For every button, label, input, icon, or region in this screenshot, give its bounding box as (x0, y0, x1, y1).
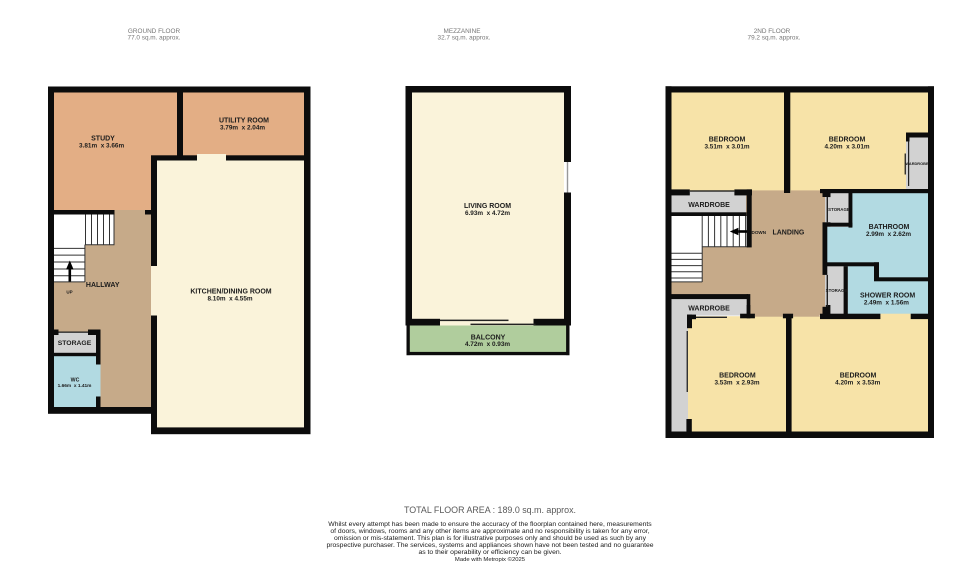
svg-text:3.79m x 2.04m: 3.79m x 2.04m (220, 125, 265, 132)
svg-text:32.7 sq.m. approx.: 32.7 sq.m. approx. (438, 35, 491, 42)
svg-text:SHOWER ROOM: SHOWER ROOM (860, 293, 915, 300)
svg-text:2.49m x 1.56m: 2.49m x 1.56m (864, 300, 909, 307)
svg-text:STORAGE: STORAGE (58, 340, 92, 347)
svg-text:KITCHEN/DINING ROOM: KITCHEN/DINING ROOM (190, 289, 271, 296)
svg-text:STORAGE: STORAGE (828, 207, 850, 212)
svg-text:3.51m x 3.01m: 3.51m x 3.01m (704, 144, 749, 151)
svg-text:BEDROOM: BEDROOM (719, 373, 756, 380)
svg-text:1.66m x 1.41m: 1.66m x 1.41m (58, 383, 92, 389)
svg-text:WC: WC (71, 378, 80, 384)
svg-text:WARDROBE: WARDROBE (688, 305, 730, 312)
svg-text:6.93m x 4.72m: 6.93m x 4.72m (465, 210, 510, 217)
svg-text:4.72m x 0.93m: 4.72m x 0.93m (465, 341, 510, 348)
svg-text:4.20m x 3.53m: 4.20m x 3.53m (835, 380, 880, 387)
svg-text:of doors, windows, rooms and a: of doors, windows, rooms and any other i… (330, 528, 649, 535)
svg-text:8.10m x 4.55m: 8.10m x 4.55m (207, 296, 252, 303)
svg-text:STORAGE: STORAGE (826, 288, 848, 293)
svg-text:3.53m x 2.93m: 3.53m x 2.93m (714, 380, 759, 387)
svg-text:Made with Metropix ©2025: Made with Metropix ©2025 (455, 556, 526, 563)
svg-text:STUDY: STUDY (91, 136, 115, 143)
svg-text:BEDROOM: BEDROOM (840, 373, 877, 380)
svg-text:as to their operability or eff: as to their operability or efficiency ca… (418, 549, 561, 556)
svg-text:BATHROOM: BATHROOM (869, 224, 910, 231)
svg-text:BEDROOM: BEDROOM (829, 137, 866, 144)
svg-text:TOTAL FLOOR AREA : 189.0 sq.m.: TOTAL FLOOR AREA : 189.0 sq.m. approx. (404, 505, 576, 515)
svg-text:HALLWAY: HALLWAY (86, 282, 120, 289)
svg-text:4.20m x 3.01m: 4.20m x 3.01m (824, 144, 869, 151)
svg-text:3.81m x 3.66m: 3.81m x 3.66m (79, 143, 124, 150)
svg-text:DOWN: DOWN (752, 230, 767, 235)
svg-text:LIVING ROOM: LIVING ROOM (464, 203, 511, 210)
svg-text:omission or mis-statement. Thi: omission or mis-statement. This plan is … (334, 535, 647, 542)
svg-text:LANDING: LANDING (772, 230, 804, 237)
svg-text:prospective purchaser. The ser: prospective purchaser. The services, sys… (326, 542, 653, 549)
svg-text:BEDROOM: BEDROOM (709, 137, 746, 144)
svg-text:WARDROBE: WARDROBE (905, 161, 929, 166)
svg-text:UP: UP (66, 290, 72, 295)
svg-text:WARDROBE: WARDROBE (688, 202, 730, 209)
svg-text:UTILITY ROOM: UTILITY ROOM (219, 118, 269, 125)
svg-text:79.2 sq.m. approx.: 79.2 sq.m. approx. (748, 35, 801, 42)
svg-text:Whilst every attempt has been: Whilst every attempt has been made to en… (328, 521, 652, 528)
svg-text:77.0 sq.m. approx.: 77.0 sq.m. approx. (128, 35, 181, 42)
svg-text:2.99m x 2.62m: 2.99m x 2.62m (866, 231, 911, 238)
